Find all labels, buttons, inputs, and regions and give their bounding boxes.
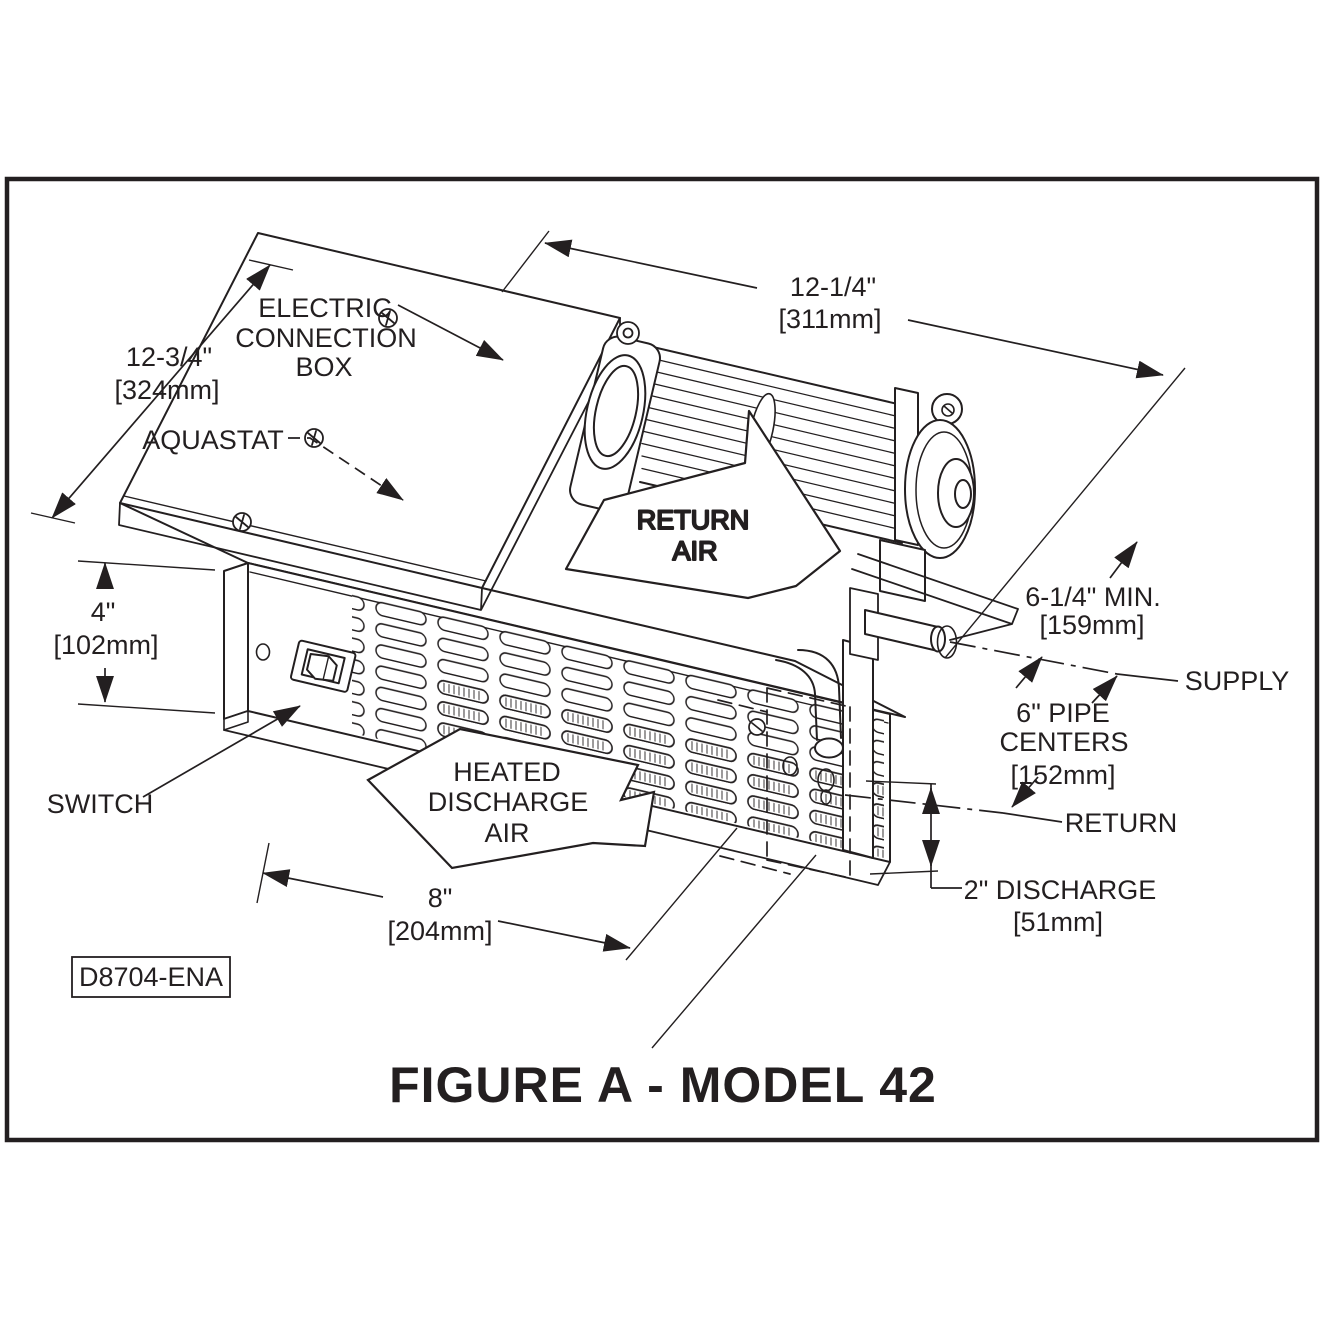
electric-box-label-line3: BOX <box>295 352 352 382</box>
supply-label: SUPPLY <box>1185 666 1290 696</box>
screw-icon <box>233 513 251 531</box>
discharge-label-line3: AIR <box>484 818 529 848</box>
technical-drawing: RETURN AIR <box>0 0 1324 1324</box>
dim-discharge-width-mm: [204mm] <box>387 916 492 946</box>
dim-discharge-height-mm: [51mm] <box>1013 907 1103 937</box>
electric-box-label-line1: ELECTRIC <box>258 293 392 323</box>
figure-title: FIGURE A - MODEL 42 <box>389 1057 937 1113</box>
end-plate <box>843 640 873 858</box>
panel-left-cap <box>224 563 248 719</box>
screw-icon <box>749 719 765 735</box>
aquastat-label: AQUASTAT <box>142 425 284 455</box>
dim-blower-length-mm: [311mm] <box>778 304 881 334</box>
motor-shaft-hub <box>955 480 971 508</box>
figure-page: RETURN AIR <box>0 0 1324 1324</box>
pipe-centers-label-line2: CENTERS <box>999 727 1128 757</box>
dim-panel-height-in: 12-3/4" <box>126 342 212 372</box>
dim-discharge-height-in: 2" DISCHARGE <box>964 875 1157 905</box>
electric-box-label-line2: CONNECTION <box>235 323 417 353</box>
dim-clearance-mm: [159mm] <box>1039 610 1144 640</box>
dim-clearance-in: 6-1/4" MIN. <box>1025 582 1161 612</box>
drawing-number: D8704-ENA <box>79 962 223 992</box>
return-air-label-line2: AIR <box>672 536 717 566</box>
dim-front-height-in: 4" <box>91 597 116 627</box>
screw-icon <box>617 322 639 344</box>
dim-blower-length-in: 12-1/4" <box>790 272 876 302</box>
pipe-centers-label-line1: 6" PIPE <box>1016 698 1110 728</box>
drawing-number-box: D8704-ENA <box>72 957 230 997</box>
return-label: RETURN <box>1065 808 1178 838</box>
dim-front-height-mm: [102mm] <box>53 630 158 660</box>
discharge-label-line1: HEATED <box>453 757 561 787</box>
dim-discharge-width-in: 8" <box>428 883 453 913</box>
discharge-label-line2: DISCHARGE <box>428 787 589 817</box>
pipe-centers-label-line3: [152mm] <box>1010 760 1115 790</box>
return-air-label-line1: RETURN <box>637 505 750 535</box>
switch-label: SWITCH <box>47 789 153 819</box>
dim-panel-height-mm: [324mm] <box>114 375 219 405</box>
